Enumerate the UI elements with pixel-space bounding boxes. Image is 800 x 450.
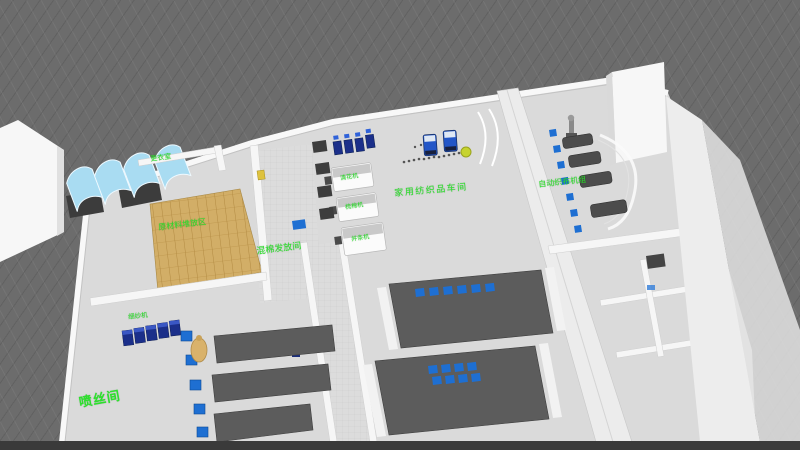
blue-item[interactable]: [574, 225, 582, 233]
agv-top: [444, 131, 455, 138]
flag-icon: [366, 129, 372, 134]
flag-machine[interactable]: [365, 134, 375, 148]
large-table-2[interactable]: [375, 346, 549, 435]
left-building-edge: [57, 146, 64, 236]
flag-machine[interactable]: [333, 141, 343, 155]
blue-item[interactable]: [458, 374, 468, 383]
blue-item[interactable]: [485, 283, 495, 292]
blue-item[interactable]: [553, 145, 561, 153]
blue-item[interactable]: [445, 375, 455, 384]
cabinet[interactable]: [317, 185, 332, 198]
agv-base: [425, 150, 436, 155]
blue-box[interactable]: [197, 427, 208, 437]
bottom-exterior-band: [0, 441, 800, 450]
agv-top: [424, 135, 435, 142]
cabinet[interactable]: [312, 140, 327, 153]
robot-head: [568, 115, 574, 121]
blue-item[interactable]: [549, 129, 557, 137]
blue-panel[interactable]: [292, 219, 306, 230]
blue-item[interactable]: [570, 209, 578, 217]
blue-item[interactable]: [471, 373, 481, 382]
cabinet[interactable]: [319, 207, 334, 220]
blue-box[interactable]: [190, 380, 201, 390]
agv-base: [445, 146, 456, 151]
blue-item[interactable]: [566, 193, 574, 201]
flag-icon: [355, 132, 361, 137]
blue-item[interactable]: [429, 287, 439, 296]
blue-item[interactable]: [457, 285, 467, 294]
factory-3d-viewport[interactable]: 喷丝间 混棉发放间 家用纺织品车间 原材料堆放区 更衣室 自动织布机组 细纱机 …: [0, 0, 800, 450]
cabinet[interactable]: [315, 162, 330, 175]
yellow-marker-ball[interactable]: [461, 147, 471, 157]
flag-icon: [333, 135, 339, 140]
flag-machine[interactable]: [355, 138, 365, 152]
yellow-box[interactable]: [257, 170, 265, 180]
machine-connector: [334, 236, 342, 245]
blue-item[interactable]: [441, 364, 451, 373]
blue-item[interactable]: [432, 376, 442, 385]
flag-machine[interactable]: [344, 139, 354, 153]
blue-item[interactable]: [561, 177, 569, 185]
agv-1[interactable]: [423, 134, 437, 156]
sack-tie: [196, 335, 202, 341]
blue-item[interactable]: [415, 288, 425, 297]
machine-connector: [324, 176, 332, 185]
blue-item[interactable]: [443, 286, 453, 295]
blue-box[interactable]: [181, 331, 192, 341]
agv-2[interactable]: [443, 130, 457, 152]
scene-svg: [0, 0, 800, 450]
blue-item[interactable]: [471, 284, 481, 293]
left-building-face: [0, 120, 64, 262]
blue-item[interactable]: [454, 363, 464, 372]
blue-item[interactable]: [557, 161, 565, 169]
cabinet[interactable]: [646, 253, 666, 268]
flag-icon: [344, 134, 350, 139]
blue-item[interactable]: [467, 362, 477, 371]
blue-item[interactable]: [428, 365, 438, 374]
blue-box[interactable]: [194, 404, 205, 414]
small-blue-marker: [647, 285, 655, 290]
